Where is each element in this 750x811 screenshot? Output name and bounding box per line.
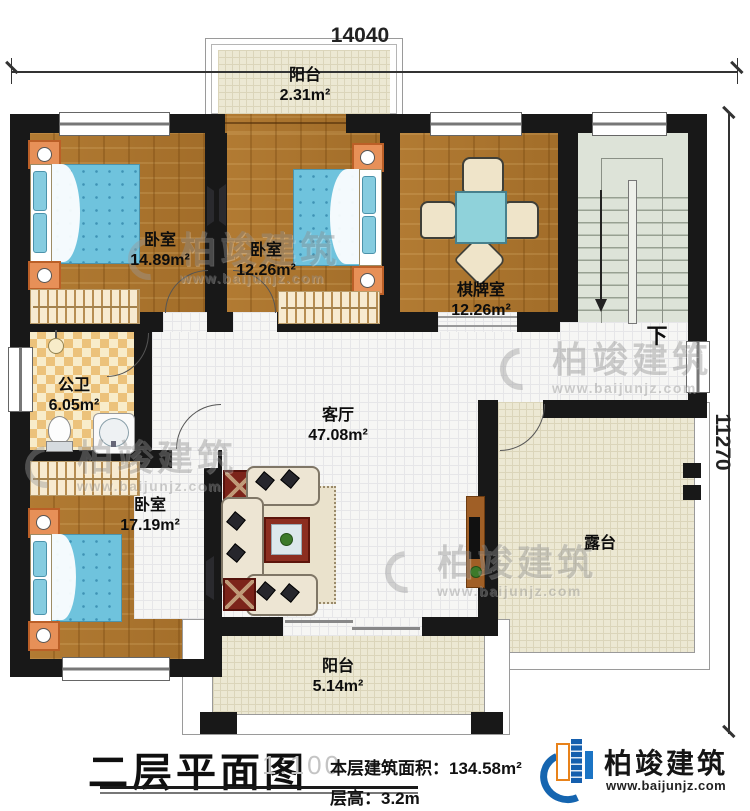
room-label-bedroom-mid: 卧室12.26m² (236, 241, 296, 281)
watermark-text: 柏竣建筑 (437, 545, 597, 581)
wall-tv (206, 556, 214, 600)
closet (278, 291, 380, 324)
sliding-door-leaf (352, 627, 420, 630)
wall-chess-stairs (558, 131, 578, 322)
floor-plan-canvas: 下 (0, 0, 750, 811)
closet (30, 289, 140, 324)
room-label-chess-room: 棋牌室12.26m² (451, 281, 511, 321)
balcony-column (471, 712, 503, 734)
window-bathroom (8, 347, 33, 412)
pillow (33, 171, 47, 211)
room-label-terrace: 露台 (584, 534, 616, 554)
brand-building-bar (585, 751, 593, 779)
pillow (362, 176, 376, 214)
chair (502, 201, 539, 239)
window-chess-room (430, 112, 522, 136)
terrace-pier (683, 463, 701, 478)
wall-terrace-top (543, 400, 690, 418)
terrace-pier (683, 485, 701, 500)
room-label-balcony-top: 阳台2.31m² (280, 66, 331, 106)
balcony-column (200, 712, 237, 734)
window-bedroom-left (59, 112, 170, 136)
brand-building-bar (571, 739, 582, 783)
dimension-width-label: 14040 (331, 24, 389, 48)
room-label-bathroom: 公卫6.05m² (49, 376, 100, 416)
room-label-bedroom-left: 卧室14.89m² (130, 231, 190, 271)
watermark-url: www.baijunjz.com (552, 380, 712, 396)
watermark-logo-icon (16, 437, 75, 496)
watermark-url: www.baijunjz.com (437, 583, 597, 599)
table-plant (280, 533, 293, 546)
ceiling-lamp (48, 338, 64, 354)
stair-arrow-line (600, 190, 602, 300)
watermark-url: www.baijunjz.com (77, 478, 237, 494)
nightstand (28, 621, 60, 651)
chess-threshold (438, 325, 517, 327)
bedroom-mid-door-opening (233, 312, 277, 332)
room-label-bedroom-big: 卧室17.19m² (120, 496, 180, 536)
nightstand (28, 261, 61, 290)
brand-name: 柏竣建筑 (604, 742, 728, 782)
chair (462, 157, 504, 194)
watermark: 柏竣建筑 www.baijunjz.com (385, 545, 597, 599)
stair-rail (628, 180, 637, 324)
watermark-logo-icon (491, 339, 550, 398)
watermark-logo-icon (376, 542, 435, 601)
floor-area-text: 本层建筑面积：134.58m² (330, 754, 522, 779)
pillow (33, 579, 47, 615)
chair (420, 201, 457, 239)
pillow (33, 541, 47, 577)
window-bedroom-big (62, 657, 170, 681)
stair-arrow-head (595, 299, 607, 312)
floor-height-text: 层高：3.2m (330, 784, 420, 809)
side-table (223, 578, 256, 611)
room-label-balcony-bottom: 阳台5.14m² (313, 657, 364, 697)
dimension-ext (11, 58, 12, 84)
bedroom-left-door-opening (163, 312, 207, 332)
dimension-height-label: 11270 (710, 413, 734, 470)
balcony-threshold (225, 122, 346, 124)
room-label-living-room: 客厅47.08m² (308, 406, 368, 446)
brand-building-bar (556, 743, 570, 781)
pillow (362, 216, 376, 254)
stairs-down-label: 下 (647, 324, 668, 350)
watermark-text: 柏竣建筑 (552, 342, 712, 378)
dimension-ext (737, 58, 738, 84)
dimension-line-top (12, 71, 738, 73)
nightstand (352, 143, 384, 172)
brand-logo-icon (540, 737, 598, 795)
watermark: 柏竣建筑 www.baijunjz.com (500, 342, 712, 396)
sliding-door-leaf (285, 620, 353, 623)
game-table (455, 191, 507, 244)
watermark-text: 柏竣建筑 (77, 440, 237, 476)
wall-tv (207, 186, 214, 226)
window-stairs (592, 112, 667, 136)
wall-tv (219, 184, 226, 226)
pillow (33, 213, 47, 253)
watermark: 柏竣建筑 www.baijunjz.com (25, 440, 237, 494)
brand-url: www.baijunjz.com (606, 778, 726, 793)
